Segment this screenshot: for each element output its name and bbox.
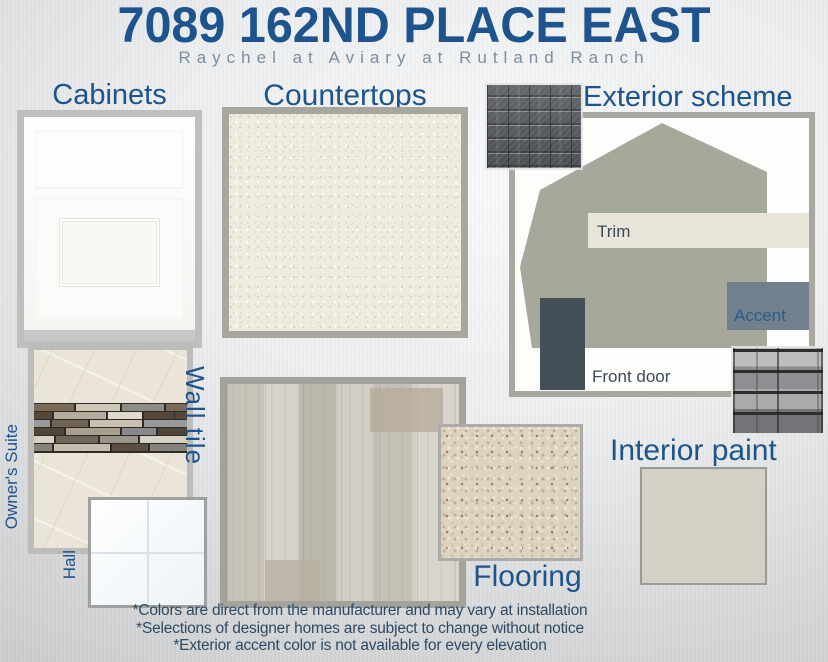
- design-selections-flyer: 7089 162ND PLACE EAST Raychel at Aviary …: [0, 0, 828, 662]
- cabinet-sample-frame: [17, 110, 202, 348]
- cabinet-door: [35, 198, 184, 320]
- page-title: 7089 162ND PLACE EAST: [12, 1, 815, 49]
- accent-label: Accent: [734, 306, 786, 326]
- countertop-sample: [222, 107, 468, 338]
- mosaic-row: [34, 420, 187, 427]
- floor-plank-patch: [370, 388, 443, 432]
- roof-shingle-sample: [487, 85, 581, 168]
- wall-tile-heading: Wall tile: [182, 366, 208, 465]
- hall-tile-sample: [88, 497, 207, 608]
- front-door-swatch: [540, 298, 585, 390]
- disclaimer-line: *Selections of designer homes are subjec…: [20, 620, 700, 638]
- hall-label: Hall: [61, 550, 78, 579]
- mosaic-row: [34, 428, 187, 435]
- wood-flooring-sample: [220, 377, 466, 608]
- exterior-scheme-heading: Exterior scheme: [583, 83, 793, 112]
- front-door-label: Front door: [592, 367, 670, 387]
- cabinet-drawer-front: [35, 130, 184, 188]
- disclaimer-line: *Exterior accent color is not available …: [20, 637, 700, 655]
- cabinet-base-strip: [24, 330, 195, 341]
- accent-swatch: Accent: [727, 282, 809, 330]
- interior-paint-heading: Interior paint: [610, 436, 777, 466]
- floor-plank-patch: [265, 560, 320, 601]
- mosaic-row: [34, 444, 187, 451]
- exterior-stone-sample: [733, 348, 823, 433]
- mosaic-row: [34, 404, 187, 411]
- mosaic-accent-strip: [34, 403, 187, 453]
- carpet-sample: [438, 424, 583, 561]
- cabinet-sample: [24, 117, 195, 341]
- disclaimer-block: *Colors are direct from the manufacturer…: [20, 602, 700, 655]
- mosaic-row: [34, 412, 187, 419]
- mosaic-row: [34, 436, 187, 443]
- flooring-heading: Flooring: [455, 562, 600, 592]
- trim-swatch: Trim: [588, 213, 809, 248]
- disclaimer-line: *Colors are direct from the manufacturer…: [20, 602, 700, 620]
- owners-suite-label: Owner's Suite: [3, 424, 20, 529]
- interior-paint-swatch: [640, 467, 767, 585]
- trim-label: Trim: [597, 222, 630, 242]
- cabinet-door-panel: [60, 219, 159, 286]
- cabinets-heading: Cabinets: [17, 81, 202, 110]
- page-subtitle: Raychel at Aviary at Rutland Ranch: [0, 48, 828, 68]
